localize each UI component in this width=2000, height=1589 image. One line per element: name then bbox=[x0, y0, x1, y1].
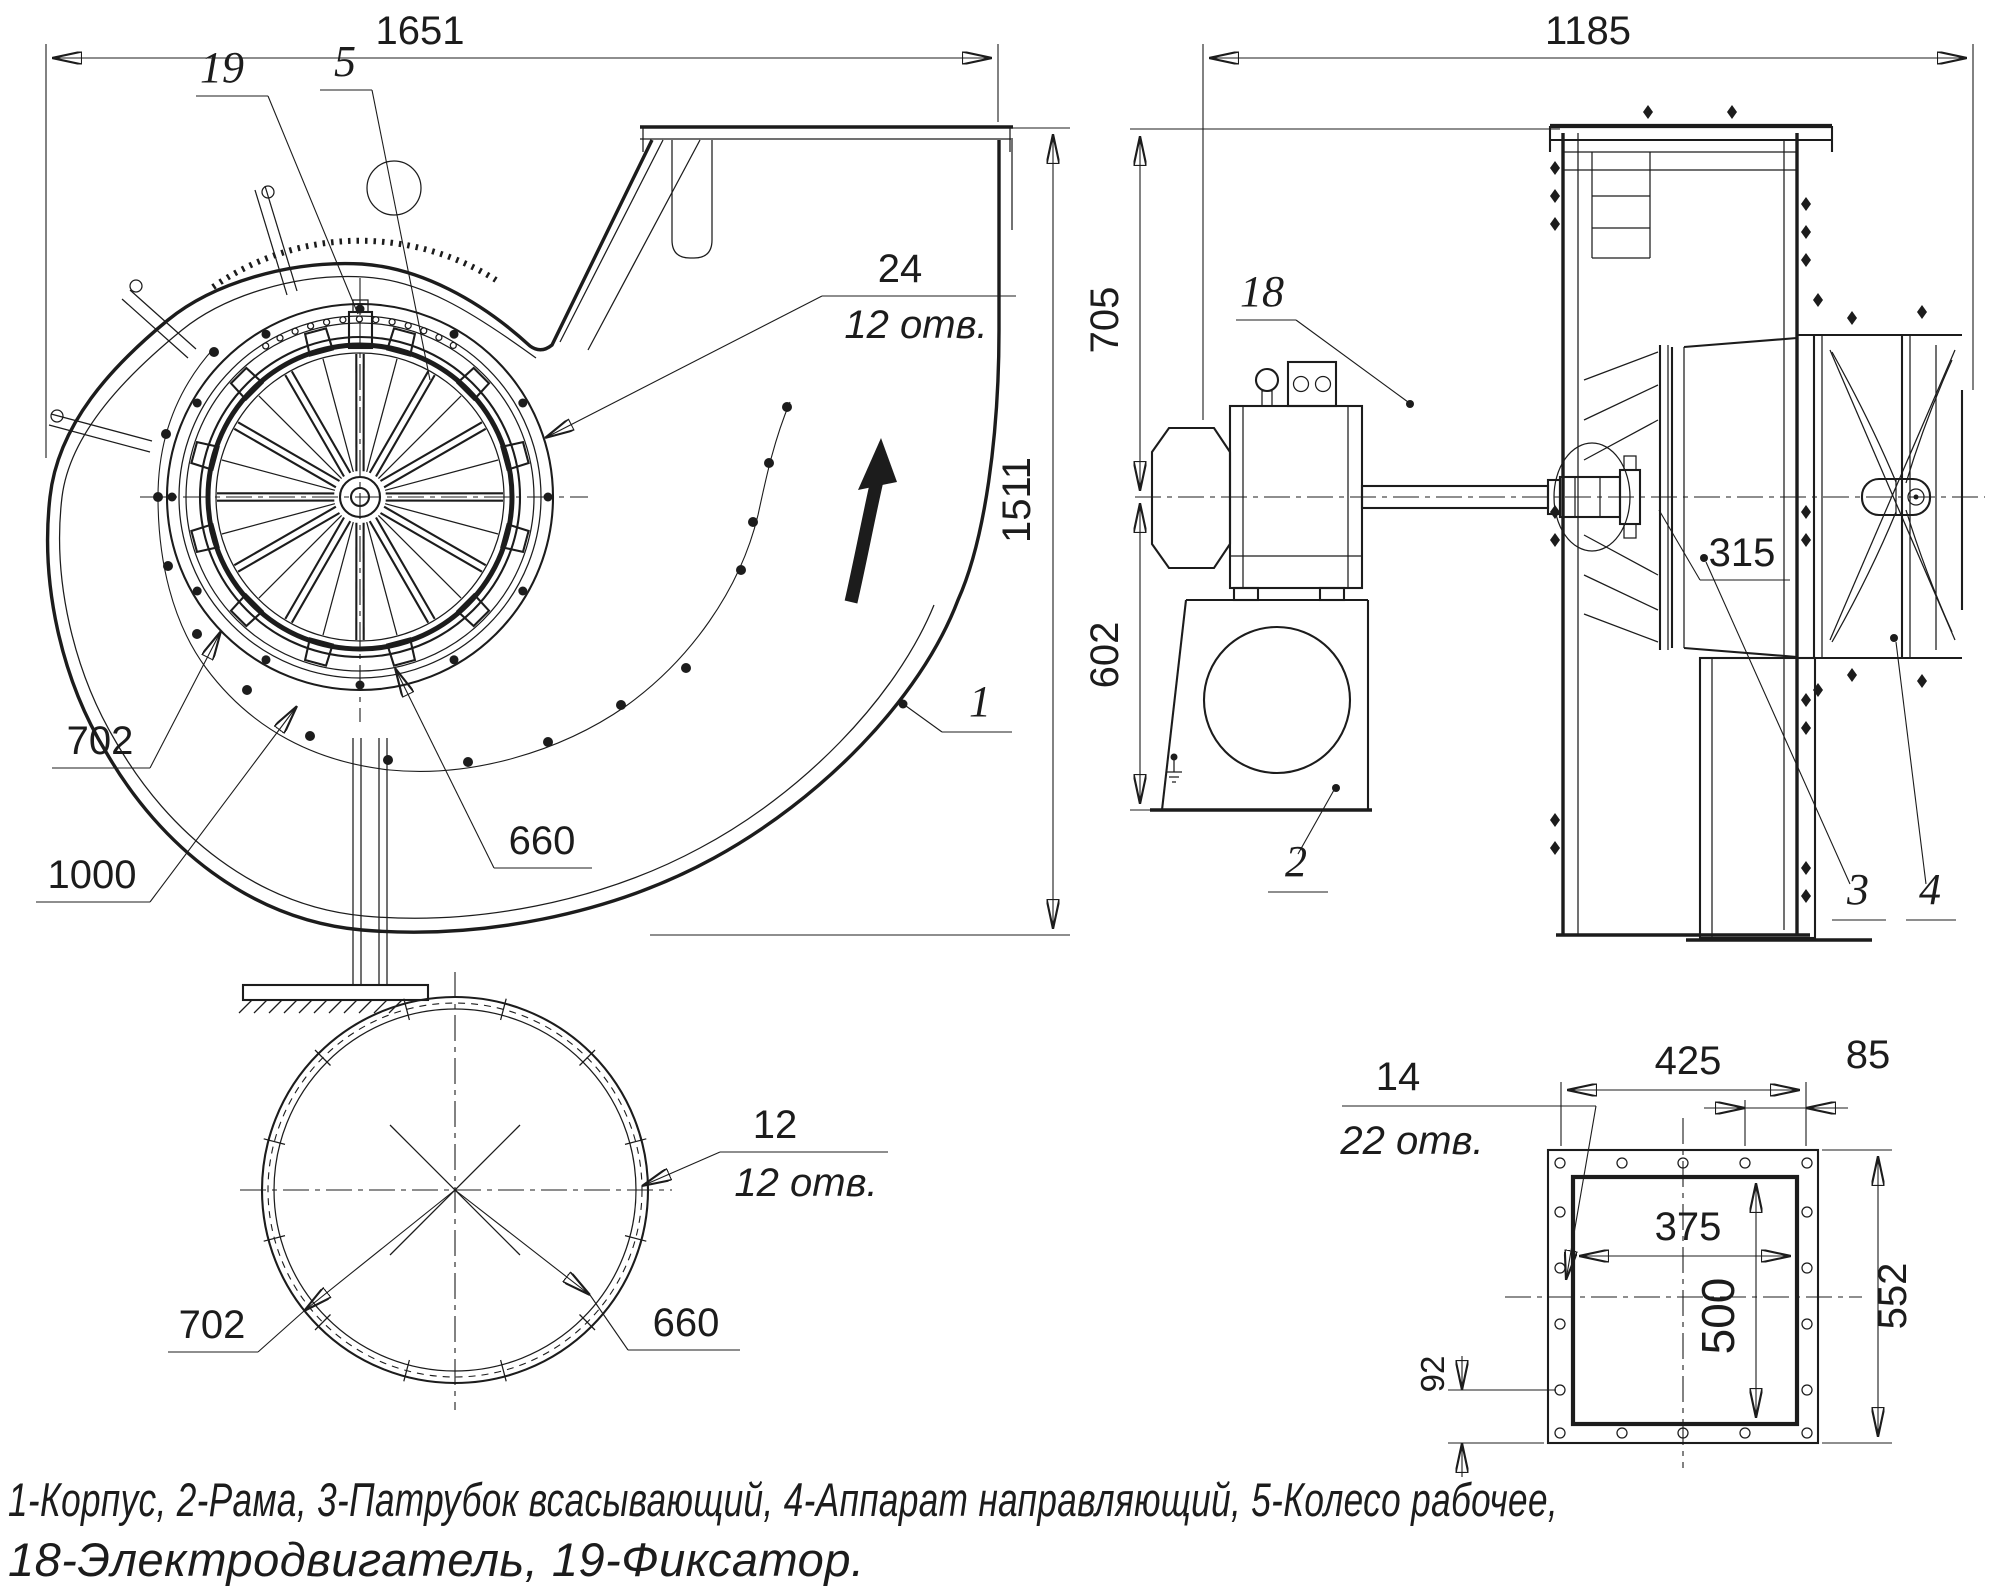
dim-holes-14: 14 bbox=[1376, 1055, 1421, 1099]
front-view: 1651 1511 19 5 24 12 отв. 1 702 bbox=[36, 9, 1070, 1013]
side-view: 1185 705 602 315 18 2 3 bbox=[1083, 9, 1985, 940]
rotation-arrow-icon bbox=[851, 438, 897, 602]
lifting-eye bbox=[1256, 369, 1278, 391]
casing-bolts bbox=[1550, 105, 1927, 903]
label-4: 4 bbox=[1919, 865, 1941, 914]
label-5: 5 bbox=[334, 37, 356, 86]
dim-315: 315 bbox=[1709, 531, 1776, 575]
dim-holes-12: 12 bbox=[753, 1103, 798, 1147]
dim-1185: 1185 bbox=[1545, 9, 1631, 53]
dim-552: 552 bbox=[1871, 1263, 1915, 1330]
dim-1511: 1511 bbox=[995, 457, 1039, 543]
legend-line-1: 1-Корпус, 2-Рама, 3-Патрубок всасывающий… bbox=[8, 1473, 1558, 1526]
dim-holes-count-12: 12 отв. bbox=[734, 1161, 877, 1205]
legend: 1-Корпус, 2-Рама, 3-Патрубок всасывающий… bbox=[8, 1473, 1558, 1586]
label-1: 1 bbox=[969, 677, 991, 726]
dim-92: 92 bbox=[1414, 1356, 1451, 1393]
foundation-hatch bbox=[239, 1000, 402, 1013]
dim-375: 375 bbox=[1655, 1205, 1722, 1249]
flange-view: 425 85 375 500 552 92 14 22 отв. bbox=[1339, 1033, 1915, 1477]
inlet-circle-view: 702 660 12 12 отв. bbox=[168, 972, 888, 1410]
dim-602: 602 bbox=[1083, 622, 1127, 689]
support-column bbox=[239, 738, 428, 1013]
label-18: 18 bbox=[1240, 267, 1284, 316]
dim-660-inlet: 660 bbox=[653, 1301, 720, 1345]
dim-705: 705 bbox=[1083, 287, 1127, 354]
dim-660-front: 660 bbox=[509, 819, 576, 863]
casing-side bbox=[1550, 105, 1927, 935]
dim-holes-count-22: 22 отв. bbox=[1339, 1119, 1483, 1163]
legend-line-2: 18-Электродвигатель, 19-Фиксатор. bbox=[8, 1533, 865, 1586]
dim-85: 85 bbox=[1846, 1033, 1891, 1077]
dim-holes-count: 12 отв. bbox=[844, 303, 987, 347]
side-dimensions: 1185 705 602 315 18 2 3 bbox=[1083, 9, 1973, 920]
dim-425: 425 bbox=[1655, 1039, 1722, 1083]
label-19: 19 bbox=[200, 43, 244, 92]
drawing-page: 1651 1511 19 5 24 12 отв. 1 702 bbox=[0, 0, 2000, 1589]
terminal-box bbox=[1288, 362, 1336, 406]
front-dimensions: 1651 1511 19 5 24 12 отв. 1 702 bbox=[36, 9, 1070, 935]
dim-holes-24: 24 bbox=[878, 247, 923, 291]
electric-motor bbox=[1152, 362, 1640, 600]
dim-702-inlet: 702 bbox=[179, 1303, 246, 1347]
label-3: 3 bbox=[1846, 865, 1869, 914]
dim-702-front: 702 bbox=[67, 719, 134, 763]
dim-1651: 1651 bbox=[376, 9, 465, 53]
dim-500: 500 bbox=[1692, 1278, 1744, 1355]
dim-1000: 1000 bbox=[48, 853, 137, 897]
technical-drawing: 1651 1511 19 5 24 12 отв. 1 702 bbox=[0, 0, 2000, 1589]
guide-vane-apparatus bbox=[1686, 335, 1962, 940]
frame-pedestal bbox=[1150, 600, 1372, 810]
